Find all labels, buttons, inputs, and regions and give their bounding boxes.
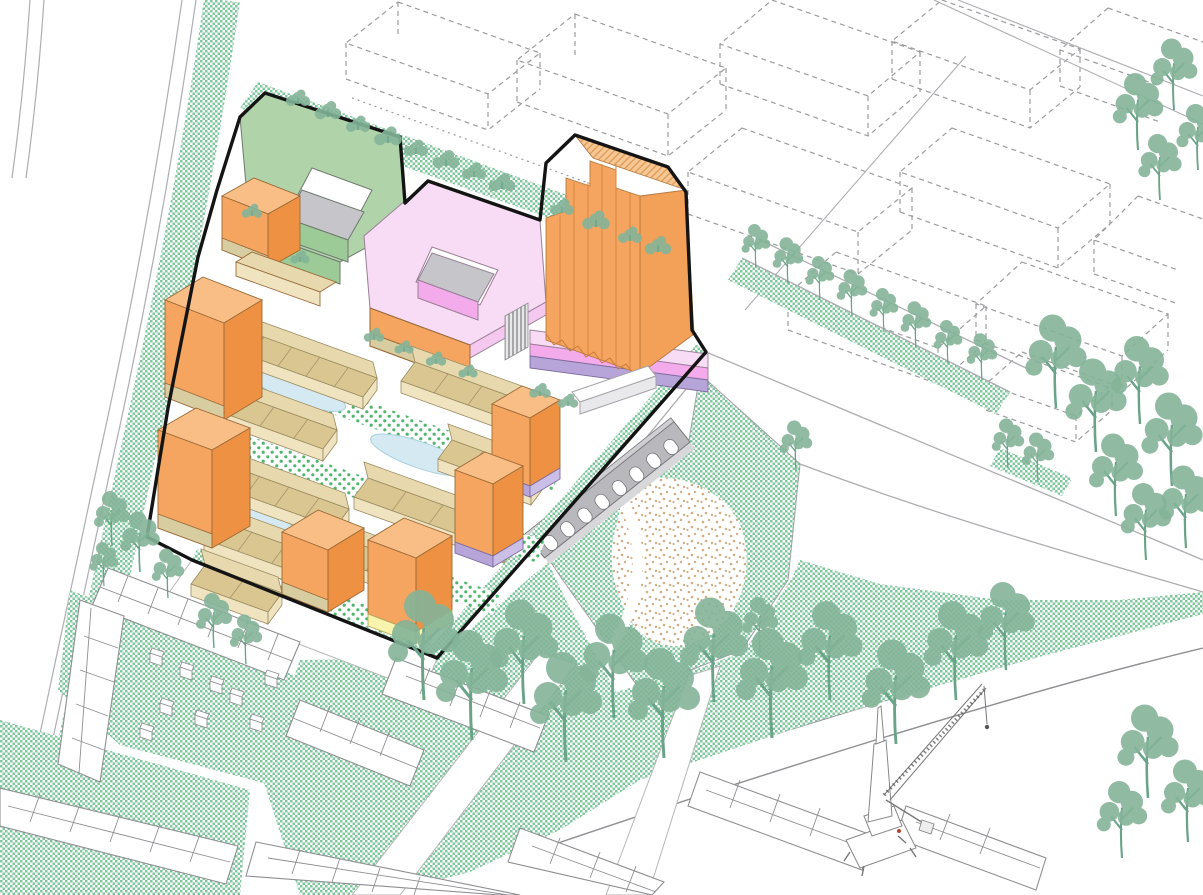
masterplan-svg (0, 0, 1203, 895)
masterplan-illustration: Axonometric urban masterplan illustratio… (0, 0, 1203, 895)
street-verge-north (728, 258, 1010, 414)
